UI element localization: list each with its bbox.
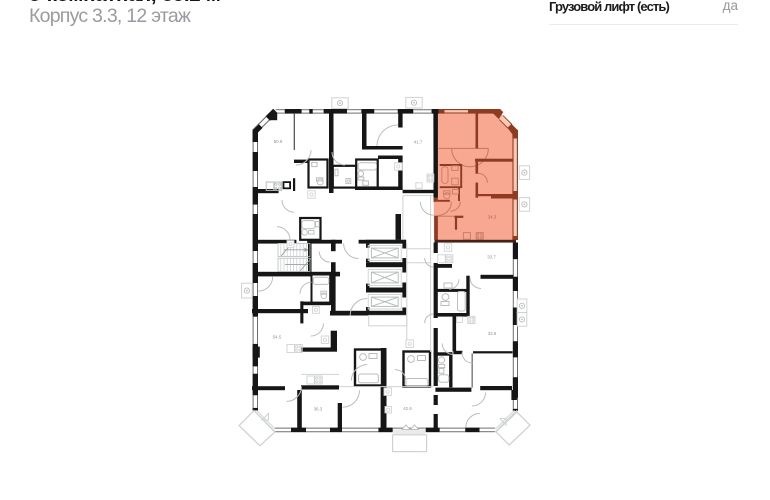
svg-text:41.7: 41.7	[414, 140, 423, 145]
svg-text:42.6: 42.6	[403, 406, 412, 411]
svg-text:50.9: 50.9	[274, 139, 283, 144]
svg-text:33.7: 33.7	[487, 255, 496, 260]
svg-text:54.5: 54.5	[273, 335, 282, 340]
svg-text:33.8: 33.8	[488, 331, 497, 336]
svg-text:36.3: 36.3	[314, 407, 323, 412]
svg-text:34.3: 34.3	[488, 215, 497, 220]
